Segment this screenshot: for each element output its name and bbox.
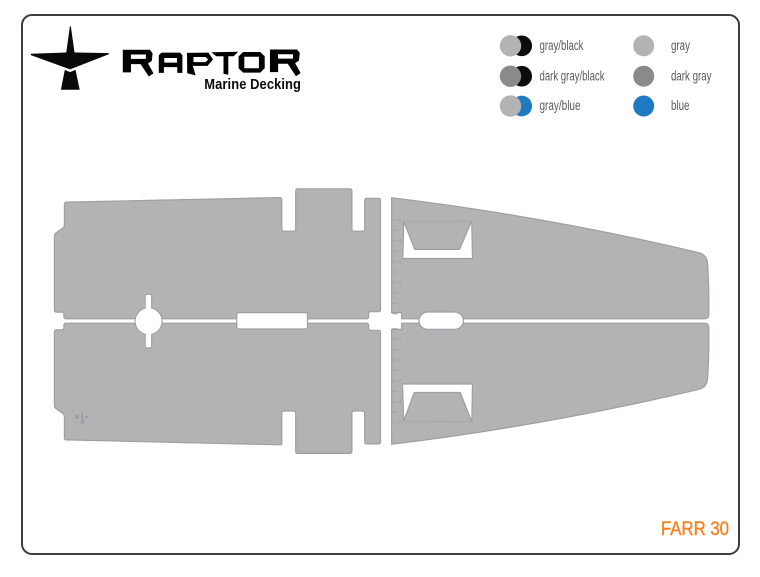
svg-text:5: 5 <box>399 420 402 426</box>
svg-text:1: 1 <box>399 337 402 343</box>
svg-text:2: 2 <box>399 280 402 286</box>
svg-text:2: 2 <box>399 358 402 364</box>
svg-text:1: 1 <box>399 301 402 307</box>
svg-text:3: 3 <box>399 379 402 385</box>
svg-text:5: 5 <box>399 218 402 224</box>
svg-text:4: 4 <box>399 239 402 245</box>
svg-text:4: 4 <box>399 400 402 406</box>
svg-text:3: 3 <box>399 260 402 266</box>
